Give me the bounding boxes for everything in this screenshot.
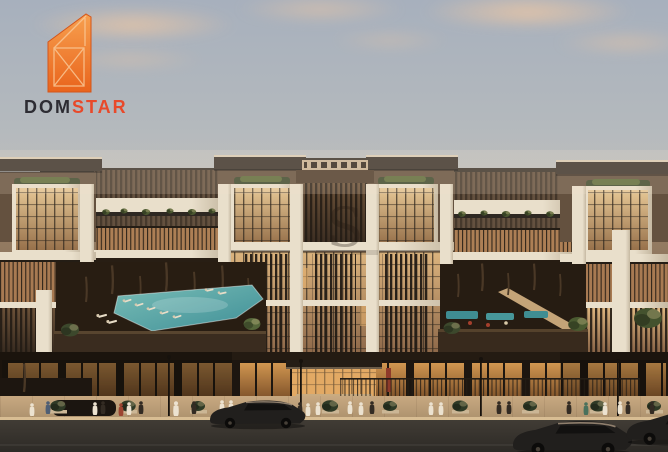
podium-storefronts <box>0 347 668 401</box>
domstar-logo-mark-icon <box>44 12 98 94</box>
logo-word-dom: DOM <box>24 97 72 117</box>
courtyard-wall <box>54 332 266 354</box>
atmospheric-haze <box>0 150 668 194</box>
street-wall <box>0 378 92 398</box>
courtyard-wall <box>438 330 588 352</box>
domstar-wordmark: DOMSTAR <box>24 98 144 116</box>
watermark-letter: S <box>327 196 364 259</box>
property-render-image: S <box>0 0 668 452</box>
street-fence <box>340 378 640 398</box>
domstar-logo: DOMSTAR <box>24 12 144 116</box>
logo-word-star: STAR <box>72 97 128 117</box>
